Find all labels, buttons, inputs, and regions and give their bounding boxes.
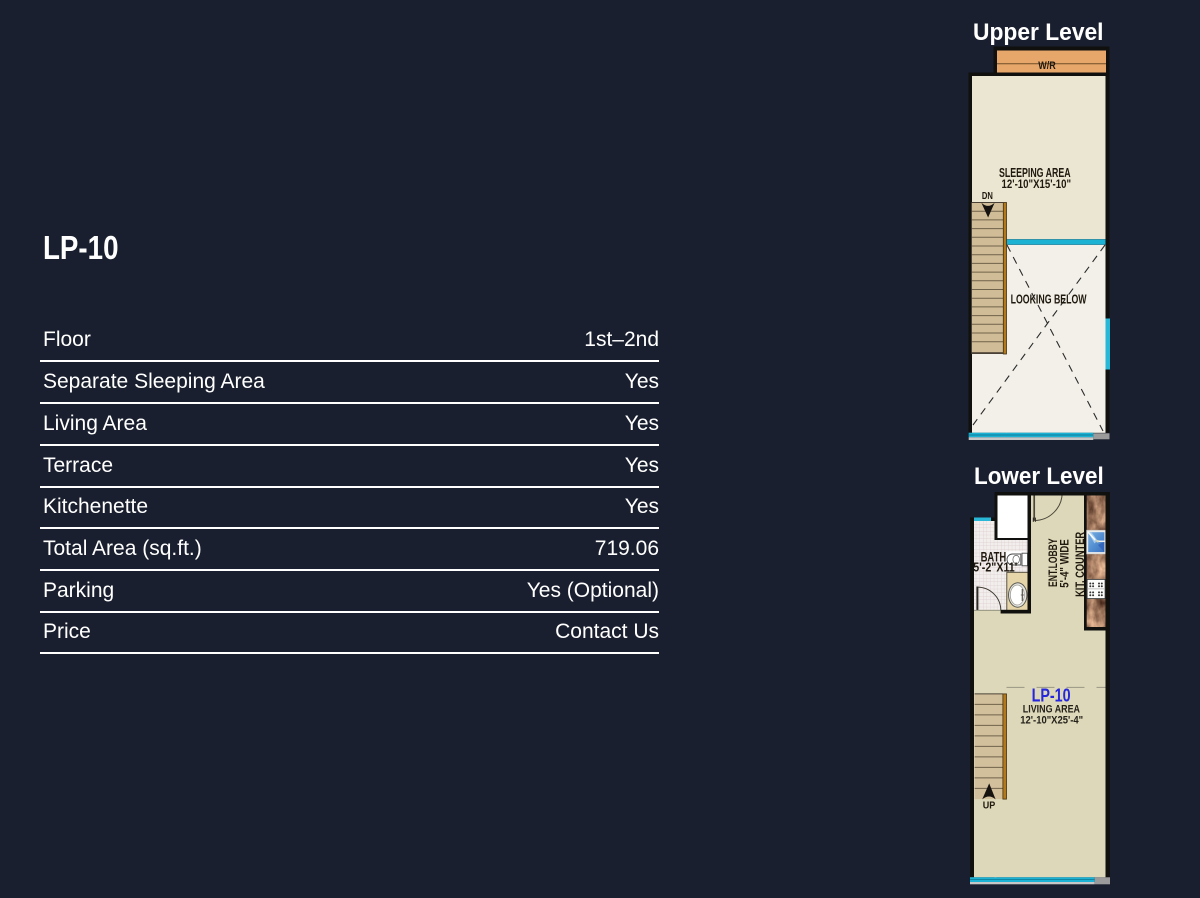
svg-text:5'-4" WIDE: 5'-4" WIDE [1060, 539, 1072, 588]
svg-text:5'-2"X11': 5'-2"X11' [973, 560, 1017, 574]
svg-text:SLEEPING AREA: SLEEPING AREA [999, 166, 1071, 180]
svg-text:W/R: W/R [1038, 60, 1056, 72]
svg-text:12'-10"X15'-10": 12'-10"X15'-10" [1002, 179, 1072, 191]
svg-text:LOOKING BELOW: LOOKING BELOW [1011, 291, 1087, 306]
svg-text:12'-10"X25'-4": 12'-10"X25'-4" [1020, 715, 1083, 727]
svg-text:KIT. COUNTER: KIT. COUNTER [1073, 532, 1087, 597]
svg-text:LP-10: LP-10 [1032, 684, 1071, 705]
svg-text:ENT.LOBBY: ENT.LOBBY [1048, 538, 1060, 587]
svg-text:DN: DN [982, 191, 993, 202]
svg-text:UP: UP [983, 799, 996, 811]
